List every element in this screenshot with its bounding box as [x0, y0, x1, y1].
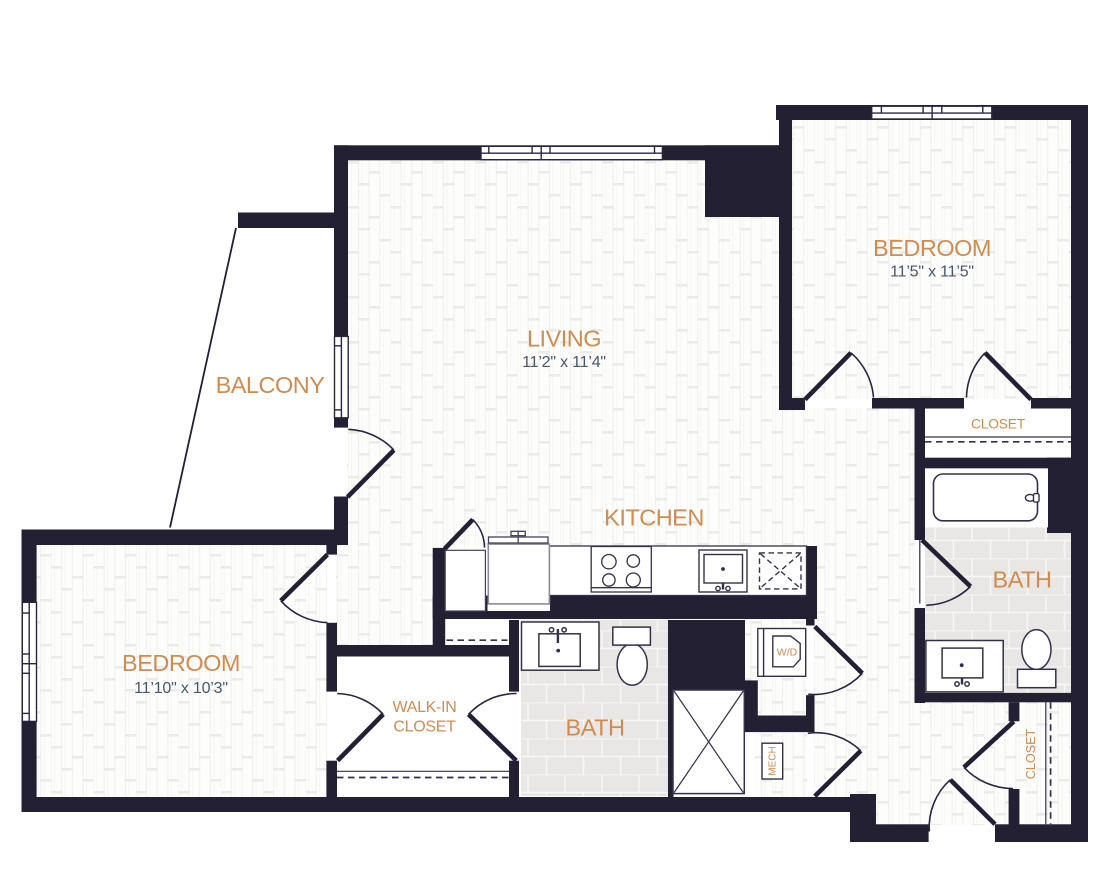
svg-text:MECH: MECH — [768, 746, 779, 775]
svg-text:BEDROOM: BEDROOM — [122, 650, 240, 676]
svg-text:BEDROOM: BEDROOM — [873, 235, 991, 261]
svg-text:CLOSET: CLOSET — [393, 719, 456, 736]
svg-text:CLOSET: CLOSET — [1024, 729, 1038, 780]
svg-text:KITCHEN: KITCHEN — [604, 505, 704, 531]
svg-text:11’2" x 11’4": 11’2" x 11’4" — [522, 354, 606, 371]
svg-text:W/D: W/D — [777, 647, 798, 659]
svg-text:11’10" x 10’3": 11’10" x 10’3" — [134, 680, 228, 697]
svg-text:11’5" x 11’5": 11’5" x 11’5" — [890, 264, 974, 281]
svg-text:BALCONY: BALCONY — [216, 372, 326, 398]
svg-text:CLOSET: CLOSET — [971, 417, 1026, 432]
svg-text:WALK-IN: WALK-IN — [393, 699, 457, 716]
svg-text:LIVING: LIVING — [527, 326, 601, 352]
svg-text:BATH: BATH — [566, 715, 625, 741]
svg-text:BATH: BATH — [993, 567, 1052, 593]
